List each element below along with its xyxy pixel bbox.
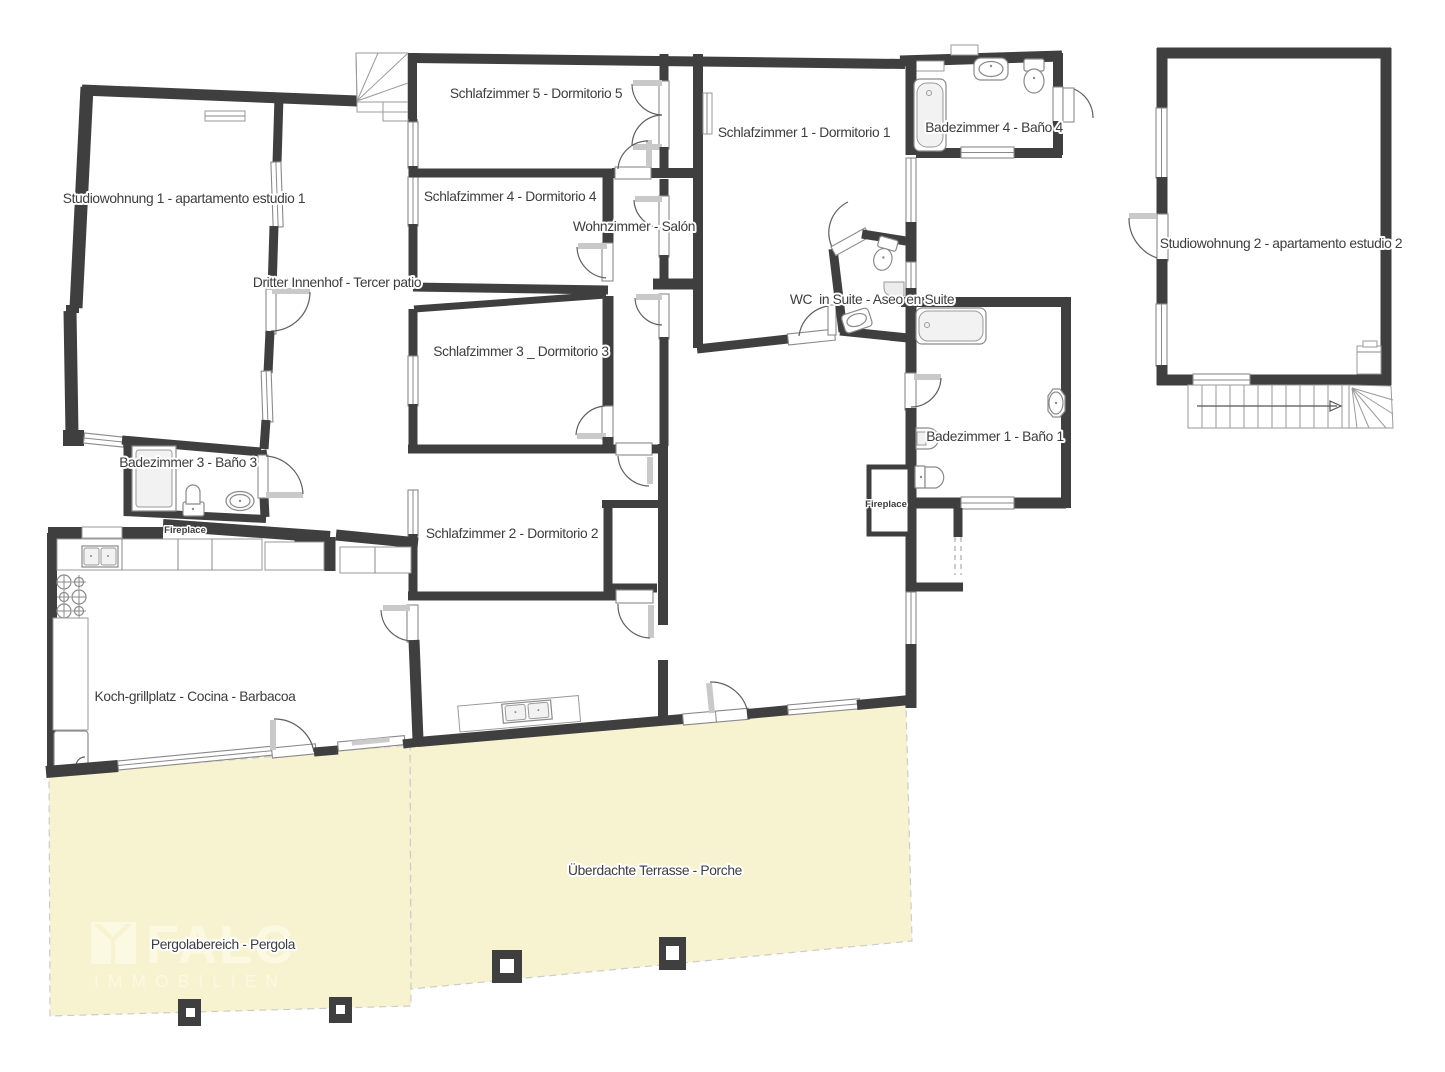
svg-text:Studiowohnung 1 - apartamento: Studiowohnung 1 - apartamento estudio 1 [63,191,306,206]
svg-text:Fireplace: Fireplace [164,525,206,536]
svg-text:Dritter Innenhof - Tercer pati: Dritter Innenhof - Tercer patio [253,275,422,290]
svg-text:Studiowohnung 2 - apartamento: Studiowohnung 2 - apartamento estudio 2 [1160,236,1403,251]
svg-text:Schlafzimmer 5 - Dormitorio 5: Schlafzimmer 5 - Dormitorio 5 [450,86,623,101]
svg-text:Wohnzimmer - Salón: Wohnzimmer - Salón [573,219,695,234]
svg-text:IMMOBILIEN: IMMOBILIEN [94,971,287,991]
svg-text:Schlafzimmer 2 - Dormitorio 2: Schlafzimmer 2 - Dormitorio 2 [426,526,598,541]
svg-text:WC in Suite - Aseo en Suite: WC in Suite - Aseo en Suite [790,292,955,307]
svg-text:Überdachte Terrasse - Porche: Überdachte Terrasse - Porche [568,861,743,878]
svg-text:Badezimmer 3 - Baño 3: Badezimmer 3 - Baño 3 [119,455,257,470]
svg-text:Schlafzimmer 4 - Dormitorio 4: Schlafzimmer 4 - Dormitorio 4 [424,189,597,204]
svg-text:Koch-grillplatz - Cocina - Bar: Koch-grillplatz - Cocina - Barbacoa [95,689,297,704]
svg-text:Fireplace: Fireplace [865,499,907,510]
svg-text:Pergolabereich - Pergola: Pergolabereich - Pergola [151,937,296,952]
svg-text:Schlafzimmer 1 - Dormitorio 1: Schlafzimmer 1 - Dormitorio 1 [718,125,890,140]
svg-text:Badezimmer 1 - Baño 1: Badezimmer 1 - Baño 1 [926,429,1064,444]
svg-text:Schlafzimmer 3 _ Dormitorio 3: Schlafzimmer 3 _ Dormitorio 3 [433,344,609,359]
svg-text:Badezimmer 4 - Baño 4: Badezimmer 4 - Baño 4 [925,120,1063,135]
